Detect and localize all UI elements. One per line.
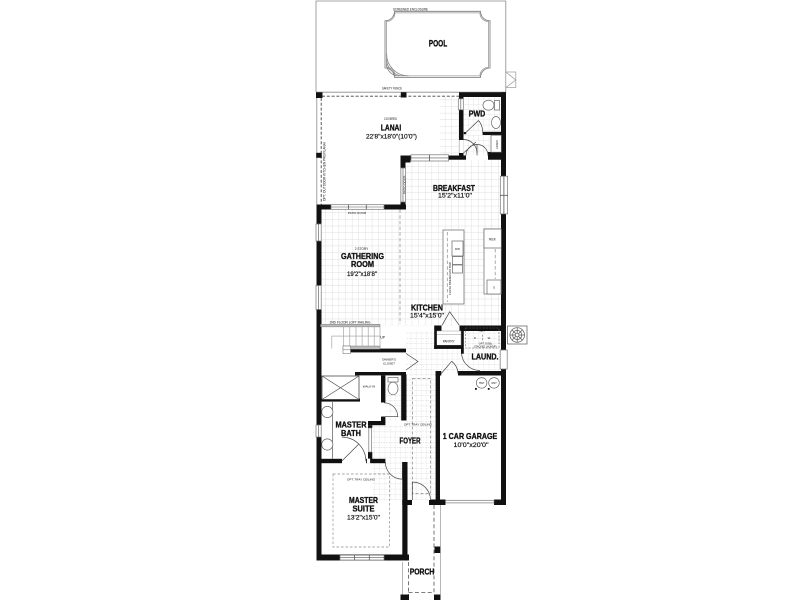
svg-text:STACKED LAUNDRY: STACKED LAUNDRY	[474, 344, 497, 348]
svg-text:OPT.: OPT.	[480, 329, 486, 333]
svg-text:LINEN: LINEN	[495, 140, 499, 149]
svg-text:LANAI: LANAI	[381, 123, 402, 133]
svg-text:13'2"x15'0": 13'2"x15'0"	[347, 515, 380, 522]
svg-text:1 CAR GARAGE: 1 CAR GARAGE	[443, 431, 498, 441]
svg-text:SUITE: SUITE	[353, 504, 375, 514]
svg-text:POOL: POOL	[429, 39, 448, 49]
svg-text:15'4"x15'0": 15'4"x15'0"	[410, 312, 444, 319]
svg-text:OPT. OUTDOOR KITCHEN PREP/LANA: OPT. OUTDOOR KITCHEN PREP/LANAI	[323, 142, 327, 201]
svg-text:OPT. TRAY CEILING: OPT. TRAY CEILING	[347, 477, 376, 481]
svg-text:PANTRY: PANTRY	[443, 339, 456, 343]
svg-text:HWT: HWT	[479, 382, 485, 385]
svg-text:15'2"x11'0": 15'2"x11'0"	[438, 193, 472, 200]
svg-text:FOYER: FOYER	[400, 435, 421, 445]
svg-text:BREAKFAST: BREAKFAST	[433, 183, 476, 193]
svg-text:DW: DW	[455, 247, 460, 251]
svg-text:PORCH: PORCH	[410, 568, 435, 577]
svg-text:WALK-IN: WALK-IN	[363, 384, 375, 388]
svg-text:REF.: REF.	[489, 238, 496, 242]
svg-text:ROOM: ROOM	[351, 259, 374, 269]
svg-text:KITCHEN: KITCHEN	[411, 303, 443, 313]
svg-text:S: S	[493, 286, 495, 290]
svg-text:WST: WST	[491, 382, 497, 385]
svg-text:D: D	[474, 336, 476, 340]
svg-text:PATIO DOOR: PATIO DOOR	[348, 211, 367, 215]
svg-text:UP: UP	[380, 335, 385, 339]
svg-text:W: W	[488, 336, 491, 340]
svg-text:OPT. TRAY CEILING: OPT. TRAY CEILING	[404, 423, 433, 427]
svg-text:10'0"x20'0": 10'0"x20'0"	[454, 442, 489, 449]
svg-text:COVERED: COVERED	[384, 117, 398, 121]
svg-text:2ND FLOOR LOFT RAILING: 2ND FLOOR LOFT RAILING	[330, 321, 371, 325]
svg-text:SAFETY FENCE: SAFETY FENCE	[382, 86, 403, 90]
svg-text:22'8"x18'0"(10'0"): 22'8"x18'0"(10'0")	[366, 134, 417, 141]
svg-text:LAUND.: LAUND.	[472, 352, 499, 361]
svg-text:CLOSET: CLOSET	[383, 361, 395, 365]
svg-text:19'2"x18'8": 19'2"x18'8"	[347, 271, 377, 278]
svg-text:PWD: PWD	[469, 110, 486, 119]
svg-text:FLUSH BREAKFAST BAR: FLUSH BREAKFAST BAR	[448, 262, 452, 295]
svg-text:SCREENED ENCLOSURE: SCREENED ENCLOSURE	[393, 8, 429, 12]
svg-text:PATIO DOOR: PATIO DOOR	[403, 175, 407, 194]
svg-text:BATH: BATH	[341, 428, 361, 438]
